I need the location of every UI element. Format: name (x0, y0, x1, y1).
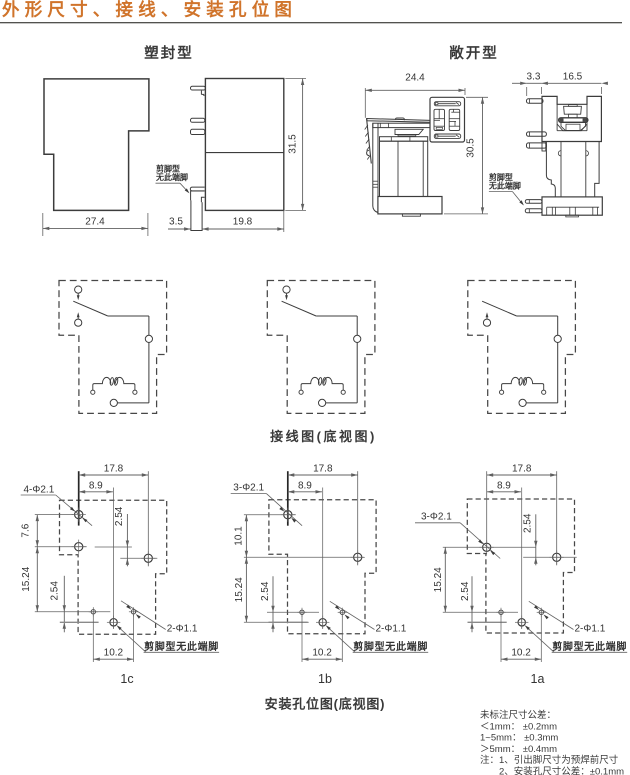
svg-text:无此端脚: 无此端脚 (488, 181, 521, 191)
svg-text:剪脚型: 剪脚型 (489, 172, 513, 182)
svg-text:安装孔位图(底视图): 安装孔位图(底视图) (265, 697, 386, 712)
svg-text:17.8: 17.8 (512, 464, 532, 475)
svg-text:敞开型: 敞开型 (449, 44, 499, 62)
svg-text:3.5: 3.5 (169, 217, 183, 228)
svg-text:剪脚型无此端脚: 剪脚型无此端脚 (353, 640, 428, 653)
svg-text:10.2: 10.2 (511, 648, 531, 659)
svg-text:16.5: 16.5 (563, 72, 583, 83)
svg-text:10.1: 10.1 (233, 526, 244, 546)
svg-text:30.5: 30.5 (466, 138, 477, 158)
svg-text:1a: 1a (531, 672, 545, 686)
svg-text:＜1mm： ±0.2mm: ＜1mm： ±0.2mm (480, 721, 557, 732)
svg-text:19.8: 19.8 (233, 217, 253, 228)
svg-text:7.6: 7.6 (20, 523, 31, 537)
svg-text:剪脚型无此端脚: 剪脚型无此端脚 (552, 640, 627, 653)
svg-text:15.24: 15.24 (433, 567, 444, 592)
svg-text:＞5mm： ±0.4mm: ＞5mm： ±0.4mm (480, 744, 557, 755)
svg-text:2-Φ1.1: 2-Φ1.1 (575, 624, 606, 635)
svg-text:17.8: 17.8 (313, 464, 333, 475)
svg-text:接线图(底视图): 接线图(底视图) (270, 429, 377, 444)
svg-text:15.24: 15.24 (234, 577, 245, 602)
svg-text:2.54: 2.54 (114, 506, 125, 526)
svg-text:剪脚型无此端脚: 剪脚型无此端脚 (144, 640, 219, 653)
svg-text:无此端脚: 无此端脚 (155, 172, 188, 182)
svg-text:塑封型: 塑封型 (144, 44, 194, 62)
svg-text:15.24: 15.24 (21, 566, 32, 591)
svg-text:3.3: 3.3 (527, 72, 541, 83)
svg-text:4-Φ2.1: 4-Φ2.1 (24, 485, 55, 496)
svg-text:1~5mm： ±0.3mm: 1~5mm： ±0.3mm (480, 733, 558, 744)
svg-text:8.9: 8.9 (89, 480, 103, 491)
svg-text:外形尺寸、接线、安装孔位图: 外形尺寸、接线、安装孔位图 (2, 0, 297, 20)
svg-text:2.54: 2.54 (50, 581, 61, 601)
svg-text:未标注尺寸公差：: 未标注尺寸公差： (480, 709, 556, 721)
svg-text:2、安装孔尺寸公差：±0.1mm: 2、安装孔尺寸公差：±0.1mm (480, 766, 624, 775)
svg-text:24.4: 24.4 (405, 73, 425, 84)
svg-text:2.54: 2.54 (460, 581, 471, 601)
svg-text:10.2: 10.2 (104, 648, 124, 659)
svg-text:2.54: 2.54 (522, 513, 533, 533)
svg-text:17.8: 17.8 (104, 464, 124, 475)
svg-text:2-Φ1.1: 2-Φ1.1 (167, 624, 198, 635)
svg-text:2.54: 2.54 (260, 581, 271, 601)
svg-text:1c: 1c (120, 672, 133, 686)
svg-text:27.4: 27.4 (85, 217, 105, 228)
svg-text:8.9: 8.9 (497, 480, 511, 491)
svg-text:1b: 1b (318, 672, 332, 686)
svg-text:31.5: 31.5 (287, 134, 298, 154)
svg-text:10.2: 10.2 (312, 648, 332, 659)
svg-text:注：1、引出脚尺寸为预焊前尺寸: 注：1、引出脚尺寸为预焊前尺寸 (480, 754, 619, 766)
svg-text:剪脚型: 剪脚型 (156, 164, 180, 174)
svg-text:3-Φ2.1: 3-Φ2.1 (233, 483, 264, 494)
svg-text:8.9: 8.9 (298, 480, 312, 491)
svg-text:2-Φ1.1: 2-Φ1.1 (376, 624, 407, 635)
svg-text:3-Φ2.1: 3-Φ2.1 (421, 512, 452, 523)
